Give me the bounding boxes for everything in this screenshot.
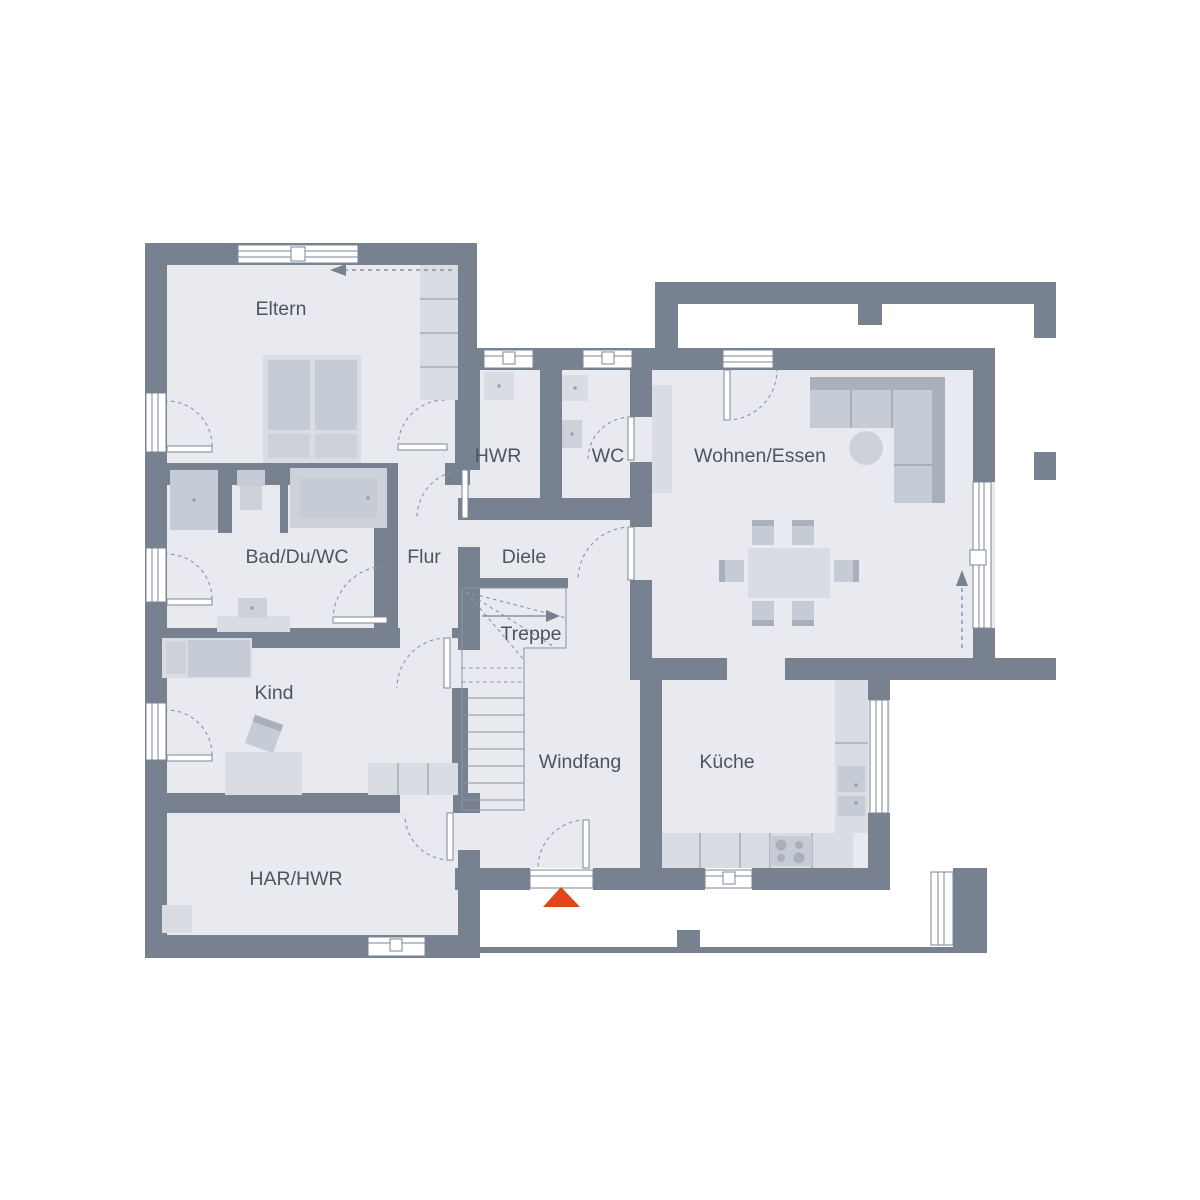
terrace-edge-stub <box>677 930 700 952</box>
terrace-wall-top <box>655 282 1056 304</box>
room-label-kind: Kind <box>254 682 293 704</box>
window-har-south <box>368 937 425 956</box>
front-door-threshold <box>530 870 593 888</box>
wall-south-kitchen <box>752 868 890 890</box>
wall-flur-treppe <box>458 547 480 650</box>
terrace-wall-stub <box>858 304 882 325</box>
floor-plan-svg: Eltern HWR WC Wohnen/Essen Bad/Du/WC Flu… <box>0 0 1200 1200</box>
room-label-flur: Flur <box>407 546 441 568</box>
wall-har-east <box>458 850 480 935</box>
terrace-wall-right-stub <box>1034 452 1056 480</box>
wall-kitchen-east-upper <box>868 680 890 700</box>
desk <box>225 752 302 795</box>
wall-treppe-top <box>480 578 568 588</box>
wall-living-bottom-right <box>785 658 1056 680</box>
wall-south-entry-right <box>593 868 705 890</box>
window-eltern-west <box>146 393 166 452</box>
terrace-wall-right-upper <box>1034 282 1056 338</box>
wardrobe <box>420 265 458 400</box>
floor-plan: Eltern HWR WC Wohnen/Essen Bad/Du/WC Flu… <box>0 0 1200 1200</box>
window-living-terrace-door <box>723 350 773 368</box>
entrance-marker-icon <box>543 887 580 907</box>
room-label-eltern: Eltern <box>256 298 307 320</box>
wall-bad-stub2 <box>280 463 288 533</box>
dresser <box>368 763 458 795</box>
wall-bad-stub1 <box>218 463 232 533</box>
washing-machine <box>484 372 514 400</box>
toilet-bad <box>237 470 265 510</box>
room-label-wc: WC <box>592 445 625 467</box>
wall-living-east-upper <box>973 370 995 482</box>
window-hwr-north <box>484 350 533 368</box>
wall-hwr-wc <box>540 370 562 498</box>
kitchen-counter-bottom <box>662 833 853 868</box>
wall-diele-living <box>630 580 652 658</box>
wall-south-west <box>145 935 480 958</box>
kitchen-counter-right <box>835 680 868 833</box>
room-label-diele: Diele <box>502 546 546 568</box>
shower <box>170 470 218 530</box>
terrace-edge-line <box>480 947 953 953</box>
sideboard <box>652 385 672 493</box>
toilet-wc <box>562 420 582 448</box>
kind-bed <box>162 638 252 678</box>
room-label-wohnen-essen: Wohnen/Essen <box>694 445 826 467</box>
wall-wc-east-upper <box>630 370 652 417</box>
wall-kind-har <box>145 793 400 813</box>
room-label-hwr: HWR <box>475 445 522 467</box>
window-bad-west <box>146 548 166 602</box>
window-kind-west <box>146 703 166 760</box>
room-label-windfang: Windfang <box>539 751 621 773</box>
double-bed <box>263 355 361 463</box>
window-eltern-north <box>238 245 358 263</box>
wall-kitchen-east-lower <box>868 813 890 868</box>
room-label-kueche: Küche <box>699 751 754 773</box>
har-appliance <box>162 905 192 933</box>
washbasin-wc <box>562 375 588 401</box>
wall-wc-east-mid <box>630 462 652 527</box>
window-kitchen-east <box>870 700 888 813</box>
terrace-pillar <box>953 868 987 953</box>
stove <box>770 836 812 866</box>
window-kitchen-south <box>705 870 752 888</box>
wall-kitchen-west <box>640 658 662 868</box>
window-terrace-corner <box>931 872 953 945</box>
window-wc-north <box>583 350 632 368</box>
room-label-har-hwr: HAR/HWR <box>249 868 342 890</box>
window-living-east-slider <box>970 482 991 628</box>
wall-diele-top <box>458 498 652 520</box>
sink <box>838 766 865 792</box>
room-label-treppe: Treppe <box>500 623 561 645</box>
room-label-bad-du-wc: Bad/Du/WC <box>246 546 349 568</box>
bathtub <box>290 468 387 528</box>
coffee-table <box>849 431 883 465</box>
